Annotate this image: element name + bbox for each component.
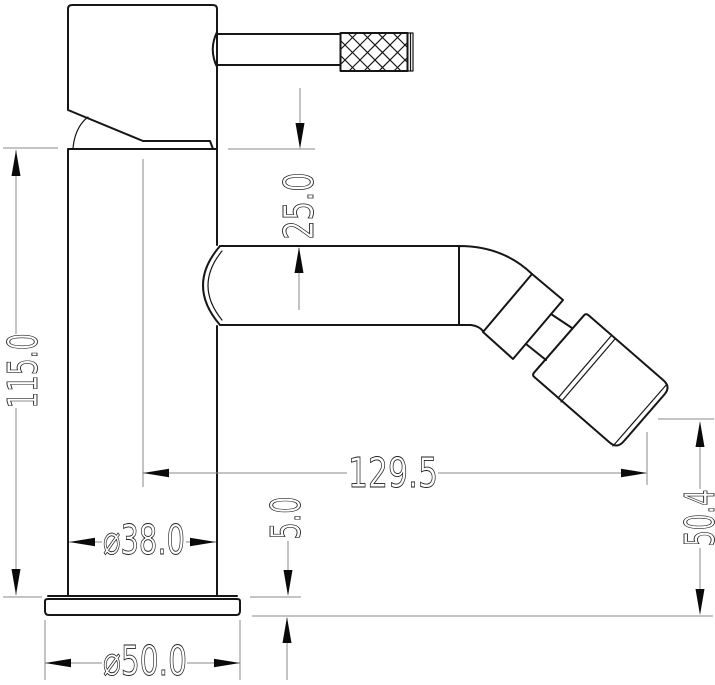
dim-spout-top-offset: 25.0 <box>228 88 323 310</box>
dim-base-thickness-lines <box>250 541 301 680</box>
handle-body-cut-arc <box>73 117 88 148</box>
handle-rod <box>217 34 340 65</box>
dim-label-spout-reach: 129.5 <box>348 449 438 497</box>
spout-head-band <box>558 336 615 402</box>
drawing-canvas: 115.0 25.0 ⌀38.0 129.5 5.0 <box>0 0 715 685</box>
dim-body-diameter: ⌀38.0 <box>69 516 216 564</box>
dim-total-height: 115.0 <box>0 148 58 597</box>
dim-base-diameter: ⌀50.0 <box>45 620 240 685</box>
dim-outlet-height: 50.4 <box>658 419 715 615</box>
handle-knurl-hatch <box>341 33 407 71</box>
dim-label-spout-top-offset: 25.0 <box>275 173 323 240</box>
dim-label-total-height: 115.0 <box>0 334 47 409</box>
spout-straight <box>220 246 532 331</box>
spout-head-face-line <box>613 384 667 446</box>
spout-collar <box>483 274 563 359</box>
dim-label-body-diameter: ⌀38.0 <box>103 516 185 564</box>
dim-spout-reach: 129.5 <box>143 432 647 497</box>
dim-base-thickness-arrows <box>283 570 293 643</box>
faucet-technical-drawing: 115.0 25.0 ⌀38.0 129.5 5.0 <box>0 0 715 685</box>
handle-body <box>68 5 217 149</box>
dim-label-outlet-height: 50.4 <box>676 490 715 547</box>
dim-base-thickness: 5.0 <box>250 497 310 681</box>
base-plate <box>45 596 240 615</box>
spout-head <box>533 314 667 445</box>
dim-label-base-thickness: 5.0 <box>262 497 310 540</box>
dim-label-base-diameter: ⌀50.0 <box>103 637 187 685</box>
